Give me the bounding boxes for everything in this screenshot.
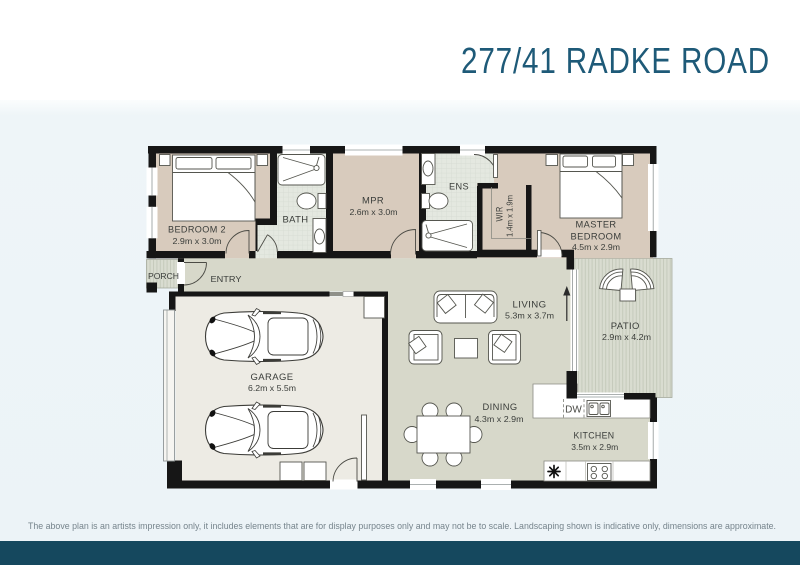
svg-text:4.5m x 2.9m: 4.5m x 2.9m [572,242,620,252]
svg-text:BEDROOM 2: BEDROOM 2 [168,225,226,236]
svg-text:5.3m x 3.7m: 5.3m x 3.7m [505,311,554,321]
svg-text:3.5m x 2.9m: 3.5m x 2.9m [571,442,618,452]
svg-text:MASTER: MASTER [576,220,617,231]
svg-text:PATIO: PATIO [611,321,640,332]
svg-text:277/41 RADKE ROAD: 277/41 RADKE ROAD [461,40,770,81]
svg-text:LIVING: LIVING [513,300,547,311]
svg-text:BEDROOM: BEDROOM [571,232,622,243]
svg-text:2.6m x 3.0m: 2.6m x 3.0m [350,207,398,217]
svg-text:ENTRY: ENTRY [211,274,242,284]
svg-text:DINING: DINING [483,402,518,413]
svg-text:DW: DW [565,405,582,416]
svg-text:1.4m x 1.9m: 1.4m x 1.9m [505,195,515,237]
svg-text:BATH: BATH [283,215,309,226]
svg-text:PORCH: PORCH [148,271,179,281]
svg-text:MPR: MPR [362,196,384,207]
svg-text:The above plan is an artists i: The above plan is an artists impression … [28,521,776,531]
svg-text:GARAGE: GARAGE [251,372,294,383]
svg-text:4.3m x 2.9m: 4.3m x 2.9m [475,414,524,424]
svg-text:2.9m x 3.0m: 2.9m x 3.0m [173,236,222,246]
svg-text:KITCHEN: KITCHEN [574,431,615,442]
svg-text:ENS: ENS [449,182,469,193]
svg-text:6.2m x 5.5m: 6.2m x 5.5m [248,383,296,393]
svg-text:2.9m x 4.2m: 2.9m x 4.2m [602,332,651,342]
